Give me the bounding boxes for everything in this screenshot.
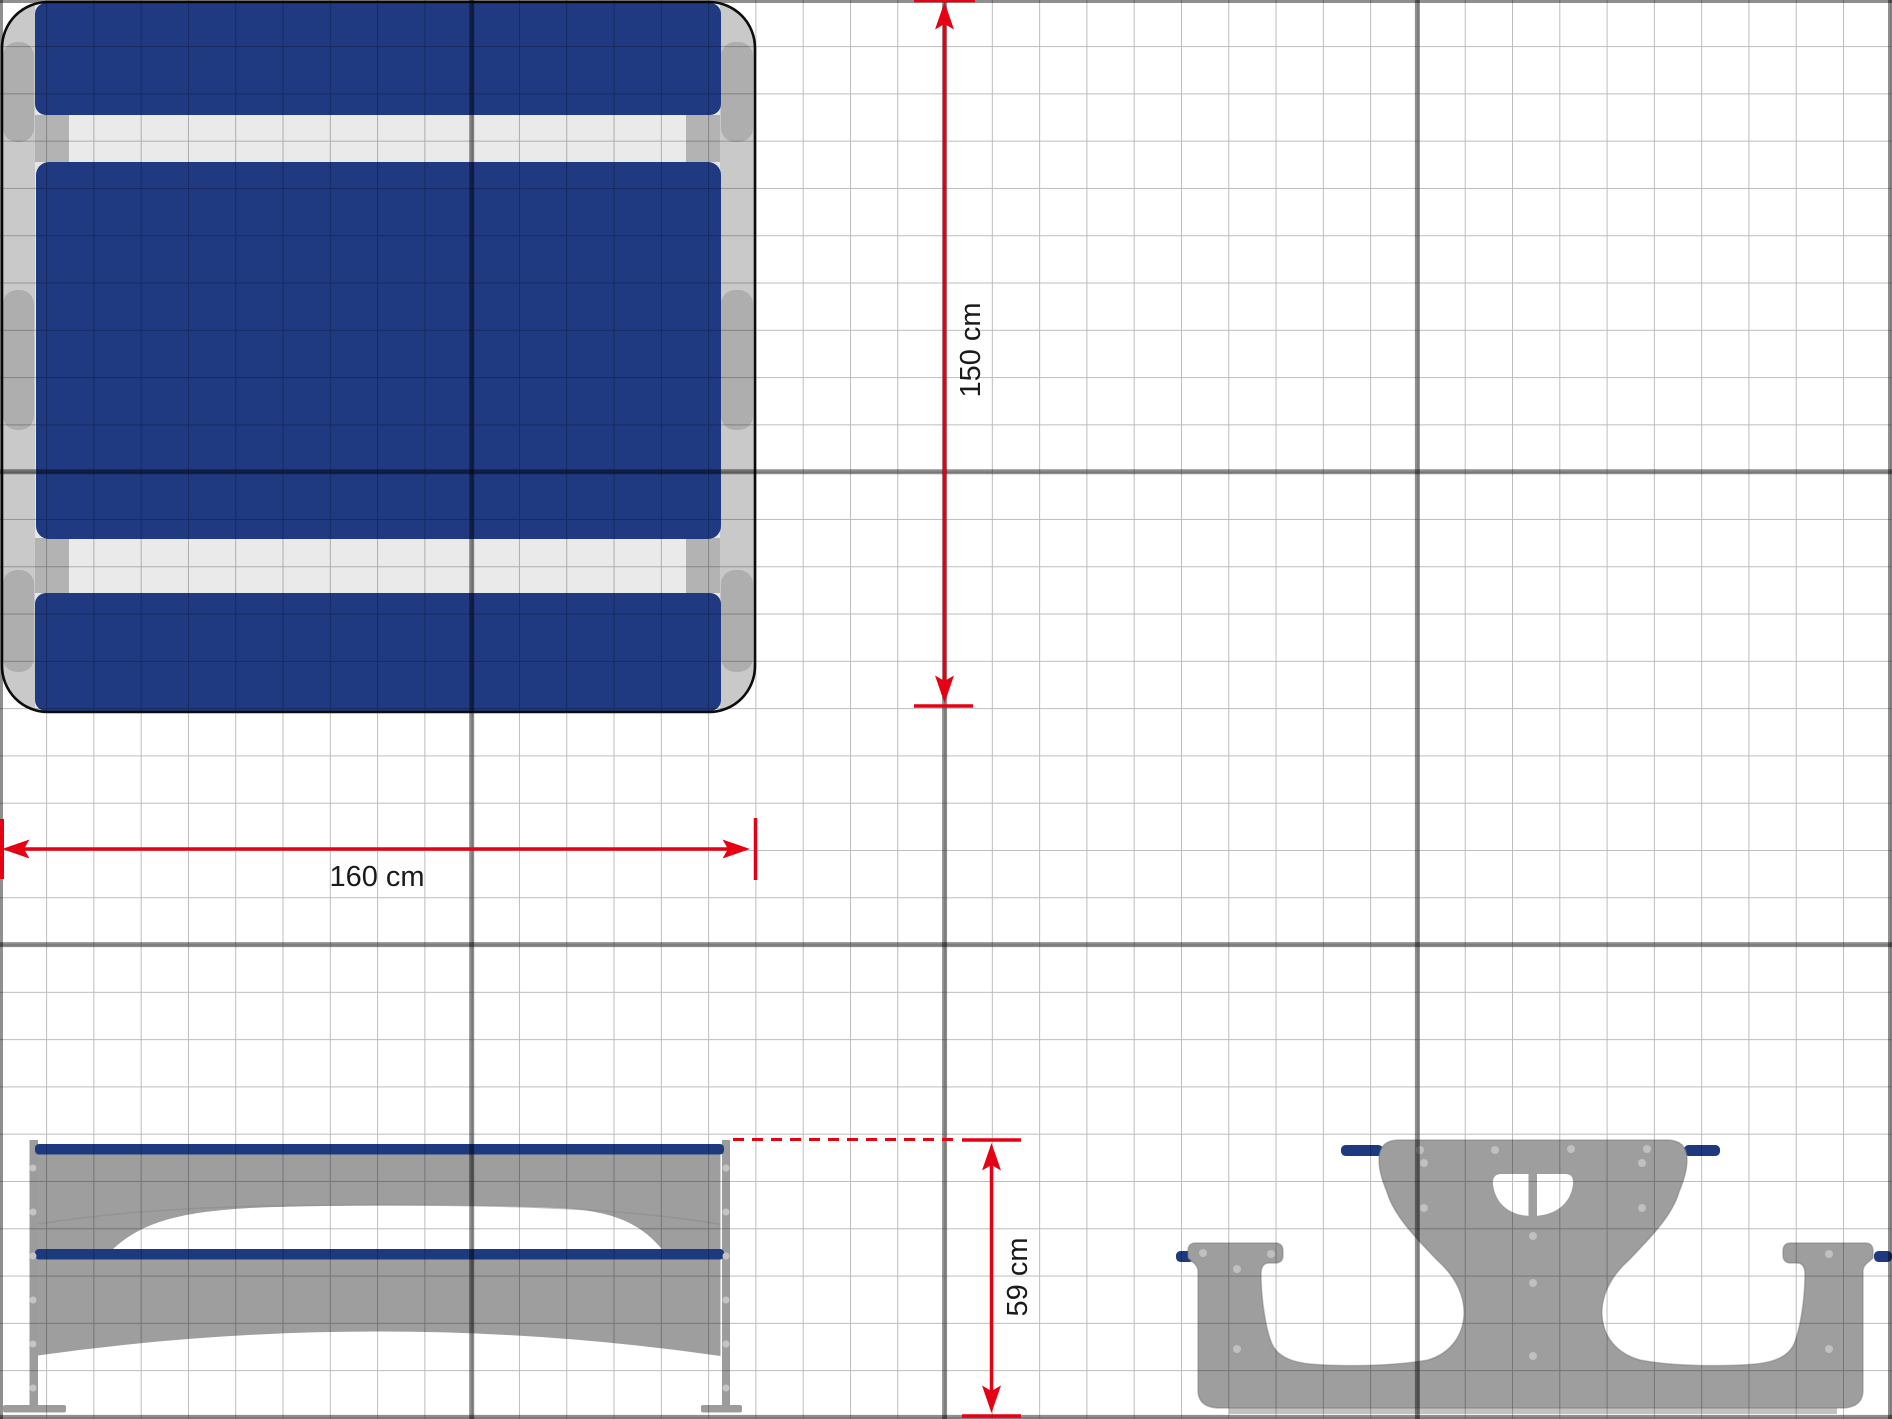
svg-text:59 cm: 59 cm: [1002, 1238, 1034, 1317]
svg-text:160 cm: 160 cm: [329, 861, 424, 893]
svg-text:150 cm: 150 cm: [955, 302, 987, 397]
